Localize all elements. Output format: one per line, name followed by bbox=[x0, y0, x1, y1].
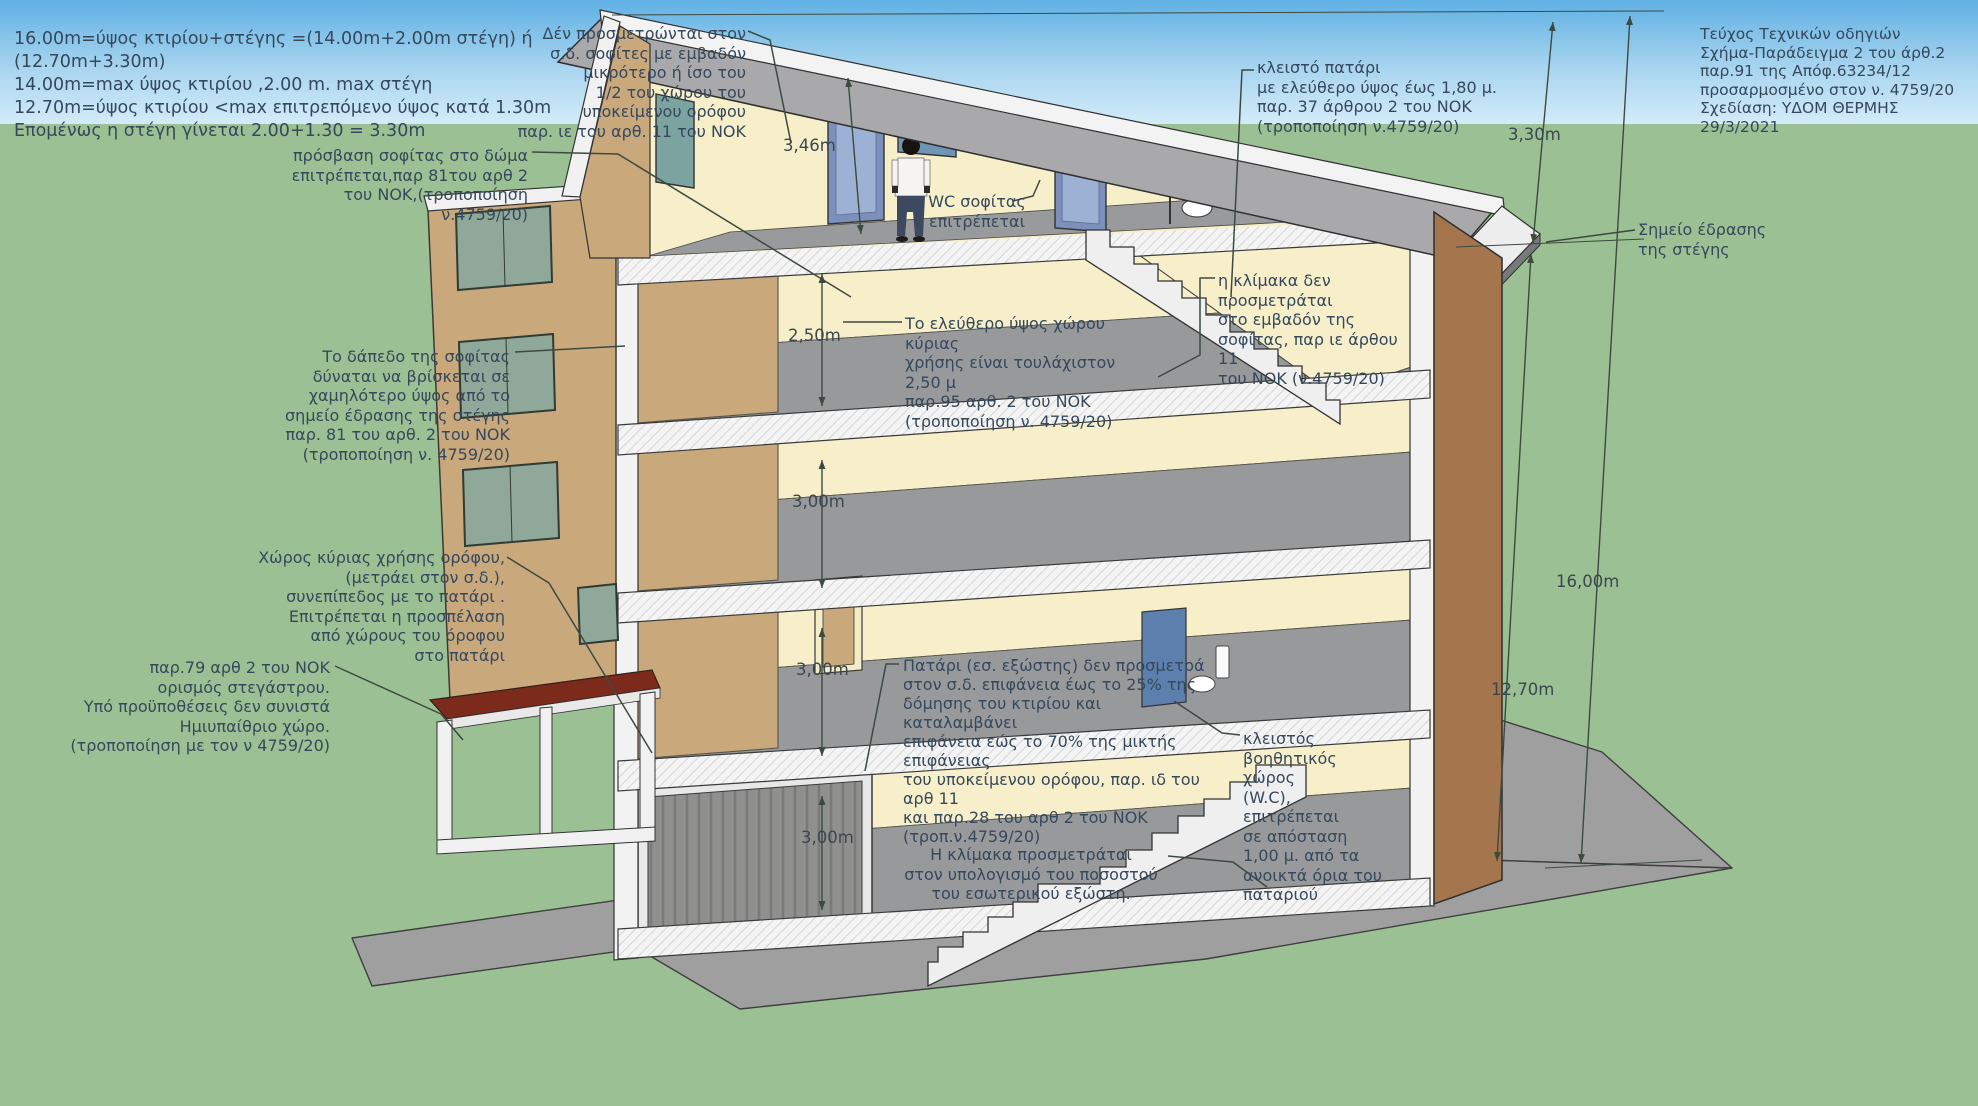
note-main-use-space: Χώρος κύριας χρήσης ορόφου, (μετράει στο… bbox=[245, 548, 505, 665]
note-roof-bearing-point: Σημείο έδρασης της στέγης bbox=[1638, 220, 1788, 259]
dim-building-height: 12,70m bbox=[1491, 680, 1554, 699]
dim-floor-1: 3,00m bbox=[796, 660, 849, 679]
note-loft-mezzanine: Πατάρι (εσ. εξώστης) δεν προσμετρά στον … bbox=[903, 656, 1213, 846]
dim-roof-height: 3,30m bbox=[1508, 125, 1561, 144]
facade-window-4 bbox=[578, 584, 618, 644]
dim-attic-interior: 3,46m bbox=[783, 136, 836, 155]
note-canopy-definition: παρ.79 αρθ 2 του ΝΟΚ ορισμός στεγάστρου.… bbox=[40, 658, 330, 756]
note-attic-stair: η κλίμακα δεν προσμετράται στο εμβαδόν τ… bbox=[1218, 271, 1398, 388]
technical-diagram-canvas: 16.00m=ύψος κτιρίου+στέγης =(14.00m+2.00… bbox=[0, 0, 1978, 1106]
note-attic-not-counted: Δέν προσμετρώνται στον σ.δ. σοφίτες με ε… bbox=[500, 24, 746, 141]
dim-top-floor-clear: 2,50m bbox=[788, 326, 841, 345]
right-exterior-wall bbox=[1434, 212, 1502, 904]
dim-floor-2: 3,00m bbox=[792, 492, 845, 511]
note-wc-attic: WC σοφίτας επιτρέπεται bbox=[925, 192, 1029, 231]
dim-ground-floor: 3,00m bbox=[801, 828, 854, 847]
note-clear-height: Το ελεύθερο ύψος χώρου κύριας χρήσης είν… bbox=[905, 314, 1145, 431]
note-attic-floor-level: Το δάπεδο της σοφίτας δύναται να βρίσκετ… bbox=[280, 347, 510, 464]
title-block: Τεύχος Τεχνικών οδηγιών Σχήμα-Παράδειγμα… bbox=[1700, 25, 1965, 136]
height-calculation-legend: 16.00m=ύψος κτιρίου+στέγης =(14.00m+2.00… bbox=[14, 28, 574, 143]
note-attic-access: πρόσβαση σοφίτας στο δώμα επιτρέπεται,πα… bbox=[284, 146, 528, 224]
note-wc-closed-space: κλειστός βοηθητικός χώρος (W.C), επιτρέπ… bbox=[1243, 729, 1383, 905]
note-stair-counted: Η κλίμακα προσμετράται στον υπολογισμό τ… bbox=[895, 845, 1167, 904]
dim-total-height: 16,00m bbox=[1556, 572, 1619, 591]
